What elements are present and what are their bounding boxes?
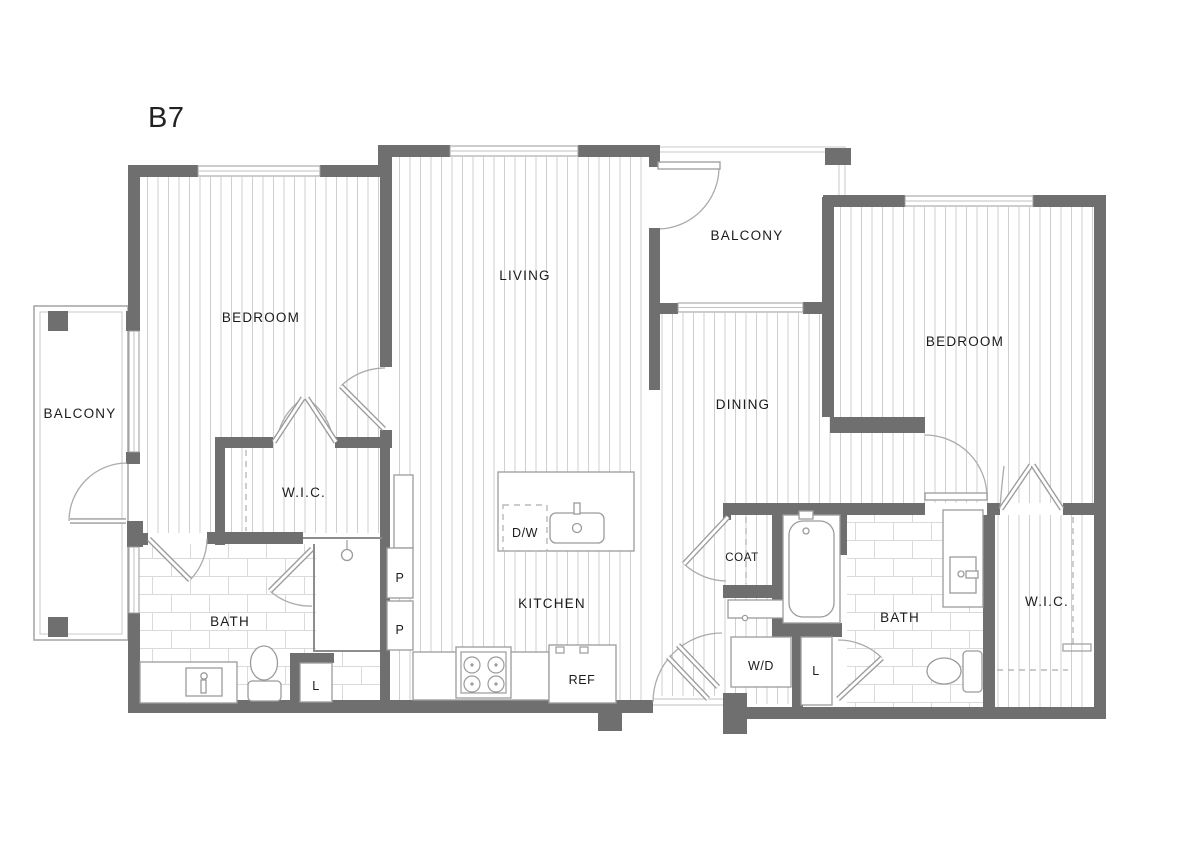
label-washer-dryer: W/D [748,659,774,673]
vanity-sink-icon [140,662,237,703]
window [198,166,320,176]
room-label-living: LIVING [499,268,550,283]
window [129,547,139,613]
laundry-shelf [728,600,790,621]
stove-icon [456,647,511,698]
tall-cabinet [394,475,413,548]
balcony-top-structure [660,147,845,197]
bathtub-icon [783,511,840,623]
room-label-balcony-left: BALCONY [44,406,117,421]
wic-right-floor [995,515,1092,707]
room-label-wic-left: W.I.C. [282,485,326,500]
shower-head-icon [342,540,353,561]
bedroom-right-floor [834,207,1094,503]
room-label-balcony-top: BALCONY [711,228,784,243]
living-kitchen-floor [392,157,649,702]
vanity-sink-icon [943,510,983,607]
balcony-top-inner-line [660,152,839,197]
room-label-kitchen: KITCHEN [518,596,586,611]
balcony-post [48,311,68,331]
label-linen-right: L [812,664,820,678]
bedroom-left-floor [138,177,382,533]
label-pantry-bottom: P [396,623,405,637]
room-label-bedroom-right: BEDROOM [926,334,1004,349]
entry-threshold [653,696,723,710]
unit-title: B7 [148,102,184,134]
label-dishwasher: D/W [512,526,538,540]
room-label-bath-left: BATH [210,614,250,629]
room-label-bedroom-left: BEDROOM [222,310,300,325]
window [678,303,803,312]
label-pantry-top: P [396,571,405,585]
label-refrigerator: REF [569,673,596,687]
room-label-bath-right: BATH [880,610,920,625]
label-linen-left: L [312,679,320,693]
balcony-top-outer-line [660,147,845,197]
room-label-wic-right: W.I.C. [1025,594,1069,609]
balcony-left-structure [34,306,128,640]
room-label-coat: COAT [725,552,759,564]
window [450,146,578,156]
window [905,196,1033,206]
floorplan-drawing: B7 BEDROOM BALCONY W.I.C. BATH LIVING BA… [0,0,1180,844]
balcony-top-door [658,162,720,229]
room-label-dining: DINING [716,397,770,412]
balcony-post [48,617,68,637]
window [129,331,139,452]
floorplan-page: B7 BEDROOM BALCONY W.I.C. BATH LIVING BA… [0,0,1180,844]
balcony-left-outline [34,306,128,640]
